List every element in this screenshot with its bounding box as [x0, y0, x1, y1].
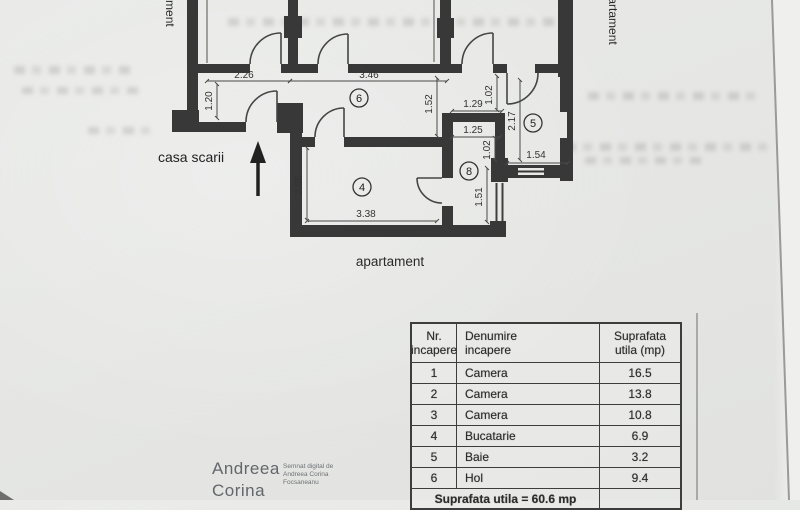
header-line: incapere: [465, 344, 511, 356]
table-header-nr: Nr. incapere: [412, 324, 457, 363]
north-arrow-icon: [250, 141, 266, 196]
apartment-label-bottom: apartament: [356, 254, 425, 269]
table-cell-area: 9.4: [600, 468, 680, 489]
dim-label: 1.02: [484, 85, 495, 105]
door-arc: [507, 73, 538, 104]
table-cell-name: Camera: [457, 405, 600, 426]
header-line: incapere: [411, 344, 457, 356]
table-cell-nr: 5: [412, 447, 457, 468]
table-row: 2 Camera 13.8: [412, 384, 680, 405]
dim-label: 1.54: [526, 150, 546, 161]
dim-label: 2.26: [234, 70, 254, 81]
room-areas-table: Nr. incapere Denumire incapere Suprafata…: [410, 322, 682, 510]
table-footer-empty: [600, 489, 680, 508]
apartment-label-right: apartament: [606, 0, 620, 45]
table-cell-name: Camera: [457, 363, 600, 384]
dim-label: 2.05: [294, 175, 305, 195]
table-cell-area: 16.5: [600, 363, 680, 384]
table-row: 1 Camera 16.5: [412, 363, 680, 384]
signature-note-line: Andreea Corina: [283, 471, 373, 479]
room-number-5: 5: [524, 114, 542, 132]
scanned-floor-plan-page: { "plan": { "labels": { "stairwell": "ca…: [0, 0, 800, 500]
dim-label: 1.02: [482, 140, 493, 160]
table-cell-area: 6.9: [600, 426, 680, 447]
table-cell-nr: 2: [412, 384, 457, 405]
paper-crease-line: [696, 313, 698, 500]
table-cell-nr: 1: [412, 363, 457, 384]
stairwell-label: casa scarii: [158, 149, 224, 165]
table-cell-nr: 3: [412, 405, 457, 426]
dimension-lines: [207, 76, 568, 222]
table-cell-nr: 6: [412, 468, 457, 489]
door-arc: [318, 34, 348, 64]
dim-label: 3.38: [356, 209, 376, 220]
header-line: utila (mp): [615, 344, 665, 356]
dim-label: 1.20: [204, 91, 215, 111]
table-footer-row: Suprafata utila = 60.6 mp: [412, 489, 680, 508]
room-number-6: 6: [350, 89, 368, 107]
table-footer-total: Suprafata utila = 60.6 mp: [412, 489, 600, 508]
table-cell-area: 13.8: [600, 384, 680, 405]
table-cell-area: 3.2: [600, 447, 680, 468]
table-header-denumire: Denumire incapere: [457, 324, 600, 363]
signature-note-line: Semnat digital de: [283, 463, 373, 471]
table-header-suprafata: Suprafata utila (mp): [600, 324, 680, 363]
table-row: 4 Bucatarie 6.9: [412, 426, 680, 447]
table-cell-name: Camera: [457, 384, 600, 405]
dim-label: 1.52: [424, 94, 435, 114]
dim-label: 2.17: [507, 111, 518, 131]
header-line: Suprafata: [614, 330, 666, 342]
table-row: 6 Hol 9.4: [412, 468, 680, 489]
dim-label: 1.29: [463, 99, 483, 110]
signature-note: Semnat digital de Andreea Corina Focsane…: [283, 463, 373, 487]
table-cell-nr: 4: [412, 426, 457, 447]
table-cell-name: Bucatarie: [457, 426, 600, 447]
table-header-row: Nr. incapere Denumire incapere Suprafata…: [412, 324, 680, 363]
table-row: 5 Baie 3.2: [412, 447, 680, 468]
room-number-4: 4: [353, 178, 371, 196]
room-number-8: 8: [460, 162, 478, 180]
dim-label: 1.25: [463, 125, 483, 136]
door-arc: [462, 33, 493, 64]
dim-label: 1.51: [474, 187, 485, 207]
signature-note-line: Focsaneanu: [283, 479, 373, 487]
svg-text:8: 8: [466, 166, 472, 178]
page-corner-shadow: [0, 491, 14, 500]
svg-text:6: 6: [356, 93, 362, 105]
dim-label: 3.46: [359, 70, 379, 81]
apartment-label-left: apartament: [163, 0, 177, 27]
table-row: 3 Camera 10.8: [412, 405, 680, 426]
svg-text:5: 5: [530, 118, 536, 130]
door-arc: [417, 178, 442, 203]
table-cell-name: Hol: [457, 468, 600, 489]
door-arc: [246, 91, 277, 122]
table-cell-area: 10.8: [600, 405, 680, 426]
door-arc: [250, 33, 281, 64]
door-arc: [315, 108, 344, 137]
header-line: Nr.: [426, 330, 441, 342]
header-line: Denumire: [465, 330, 517, 342]
table-cell-name: Baie: [457, 447, 600, 468]
svg-text:4: 4: [359, 182, 365, 194]
